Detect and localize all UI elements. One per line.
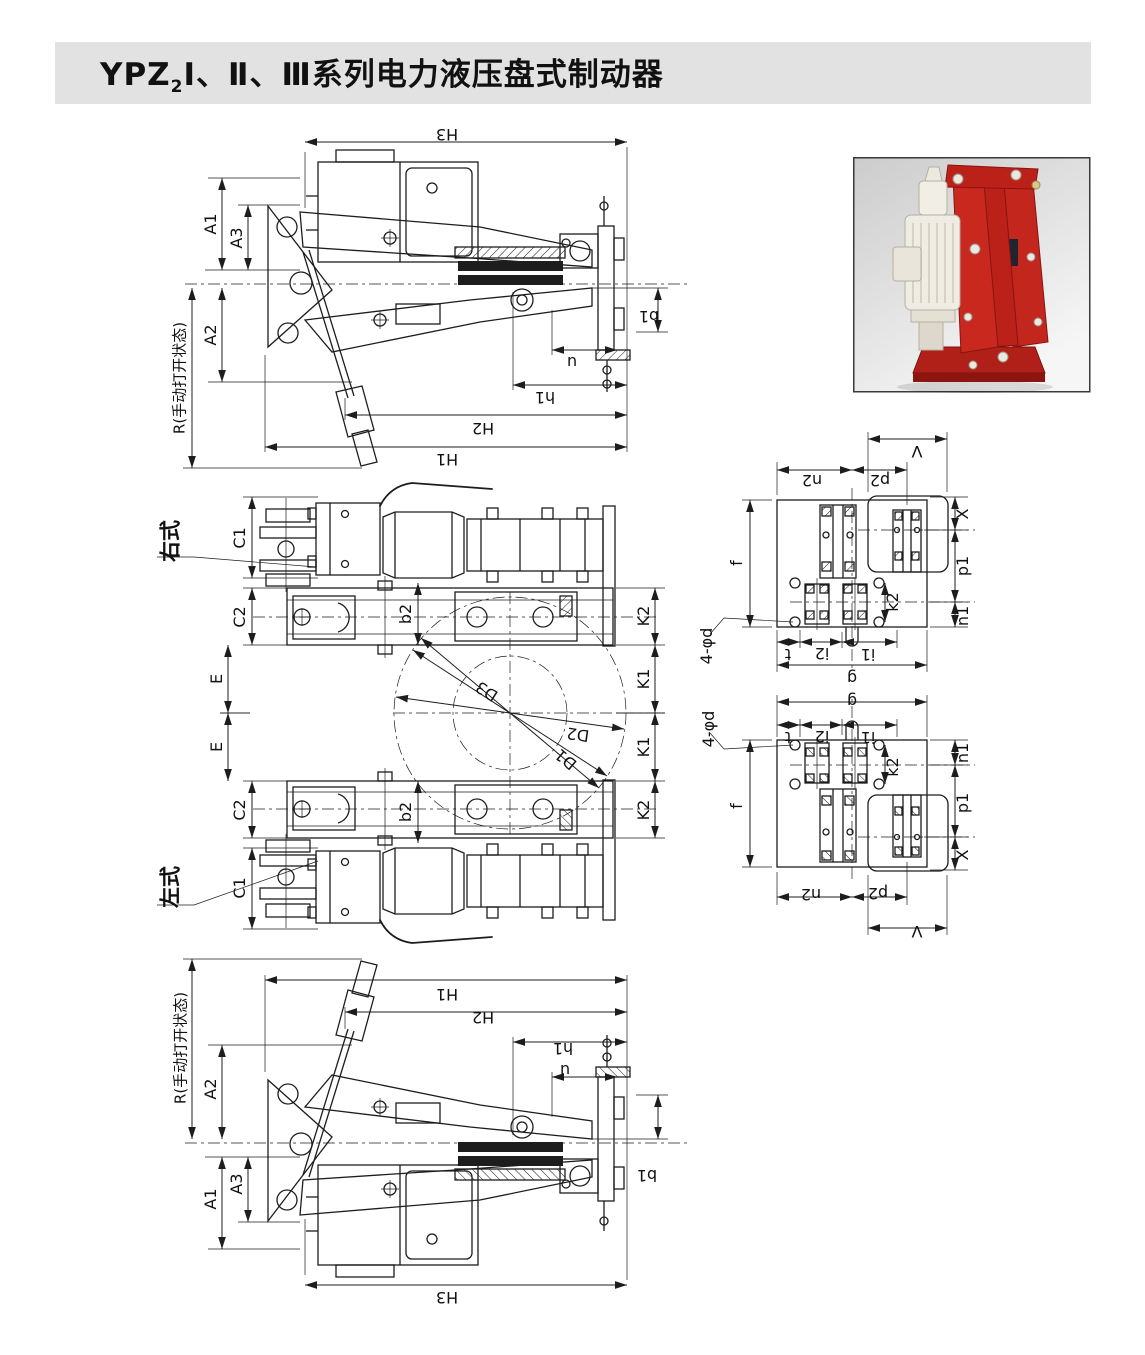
plan-left-dim-C2: C2	[232, 799, 248, 820]
plate-bottom-dim-i1: i1	[861, 729, 876, 745]
side-bottom-dim-H3: H3	[436, 1289, 458, 1305]
catalog-page: YPZ2Ⅰ、Ⅱ、Ⅲ系列电力液压盘式制动器	[0, 0, 1145, 1355]
side-top-dim-u: u	[567, 354, 577, 370]
product-photo	[854, 158, 1090, 393]
plan-left-dim-b2: b2	[398, 802, 414, 822]
plan-left-dim-E: E	[209, 742, 225, 752]
plate-bottom-dim-X: X	[955, 850, 971, 861]
plan-right-dim-E: E	[209, 674, 225, 684]
plate-bottom-dim-p1: p1	[955, 793, 971, 813]
side-bottom-dim-H1: H1	[436, 986, 458, 1002]
mounting-plate-top	[710, 432, 975, 672]
side-top-dim-h1: h1	[535, 389, 555, 405]
plate-top-dim-i2: i2	[815, 645, 830, 661]
plate-top-dim-p2: p2	[870, 472, 890, 488]
mounting-plate-bottom	[710, 695, 975, 935]
side-top-dim-H3: H3	[436, 126, 458, 142]
plate-top-dim-p1: p1	[955, 556, 971, 576]
plan-right-dim-C2: C2	[232, 606, 248, 627]
plate-bottom-dim-n2: n2	[801, 886, 821, 902]
plan-view-right	[220, 483, 665, 713]
plate-bottom-dim-holes: 4-φd	[701, 711, 717, 748]
plan-left-dim-C1: C1	[232, 877, 248, 898]
plate-bottom-dim-t: t	[785, 729, 791, 745]
plate-top-dim-holes: 4-φd	[699, 628, 715, 665]
plate-bottom-dim-f: f	[729, 803, 745, 809]
plate-top-dim-n1: n1	[955, 606, 971, 626]
side-top-dim-A1: A1	[203, 213, 219, 234]
side-top-dim-H2: H2	[472, 420, 494, 436]
disc-dim-D2: D2	[566, 725, 591, 744]
side-bottom-dim-u: u	[560, 1062, 570, 1078]
plate-top-dim-V: V	[912, 443, 923, 459]
plan-right-dim-b2: b2	[398, 604, 414, 624]
side-top-dim-H1: H1	[436, 451, 458, 467]
side-view-bottom	[183, 959, 688, 1285]
side-top-dim-b1: b1	[639, 308, 659, 324]
plan-right-dim-C1: C1	[232, 527, 248, 548]
side-bottom-dim-b1: b1	[637, 1167, 657, 1183]
plan-left-dim-K2: K2	[636, 800, 652, 821]
plate-bottom-dim-i2: i2	[815, 728, 830, 744]
plate-top-dim-f: f	[729, 560, 745, 566]
side-bottom-dim-H2: H2	[472, 1009, 494, 1025]
plan-right-dim-K1: K1	[636, 669, 652, 690]
side-bottom-dim-R-open: R(手动打开状态)	[174, 992, 189, 1104]
plan-left-dim-K1: K1	[636, 737, 652, 758]
plate-top-dim-X: X	[955, 509, 971, 520]
plan-right-dim-K2: K2	[636, 606, 652, 627]
side-view-top	[183, 142, 688, 468]
side-top-dim-A2: A2	[203, 324, 219, 345]
plate-top-dim-g: g	[847, 670, 857, 686]
plan-left-type-label: 左式	[161, 866, 182, 908]
plate-top-dim-i1: i1	[861, 646, 876, 662]
side-bottom-dim-A2: A2	[203, 1078, 219, 1099]
disc-view	[393, 592, 665, 838]
plate-top-dim-t: t	[785, 646, 791, 662]
plate-bottom-dim-n1: n1	[955, 743, 971, 763]
side-top-dim-A3: A3	[229, 227, 245, 248]
side-bottom-dim-A1: A1	[203, 1188, 219, 1209]
side-bottom-dim-h1: h1	[553, 1040, 573, 1056]
plate-bottom-dim-g: g	[847, 693, 857, 709]
plate-bottom-dim-p2: p2	[868, 885, 888, 901]
plate-bottom-dim-k2: k2	[885, 757, 901, 776]
plan-right-type-label: 右式	[161, 520, 182, 562]
plate-top-dim-n2: n2	[802, 472, 822, 488]
plate-top-dim-k2: k2	[885, 592, 901, 611]
plan-view-left	[220, 713, 665, 943]
side-top-dim-R-open: R(手动打开状态)	[173, 322, 188, 434]
plate-bottom-dim-V: V	[912, 923, 923, 939]
side-bottom-dim-A3: A3	[229, 1173, 245, 1194]
engineering-drawing	[0, 0, 1145, 1355]
